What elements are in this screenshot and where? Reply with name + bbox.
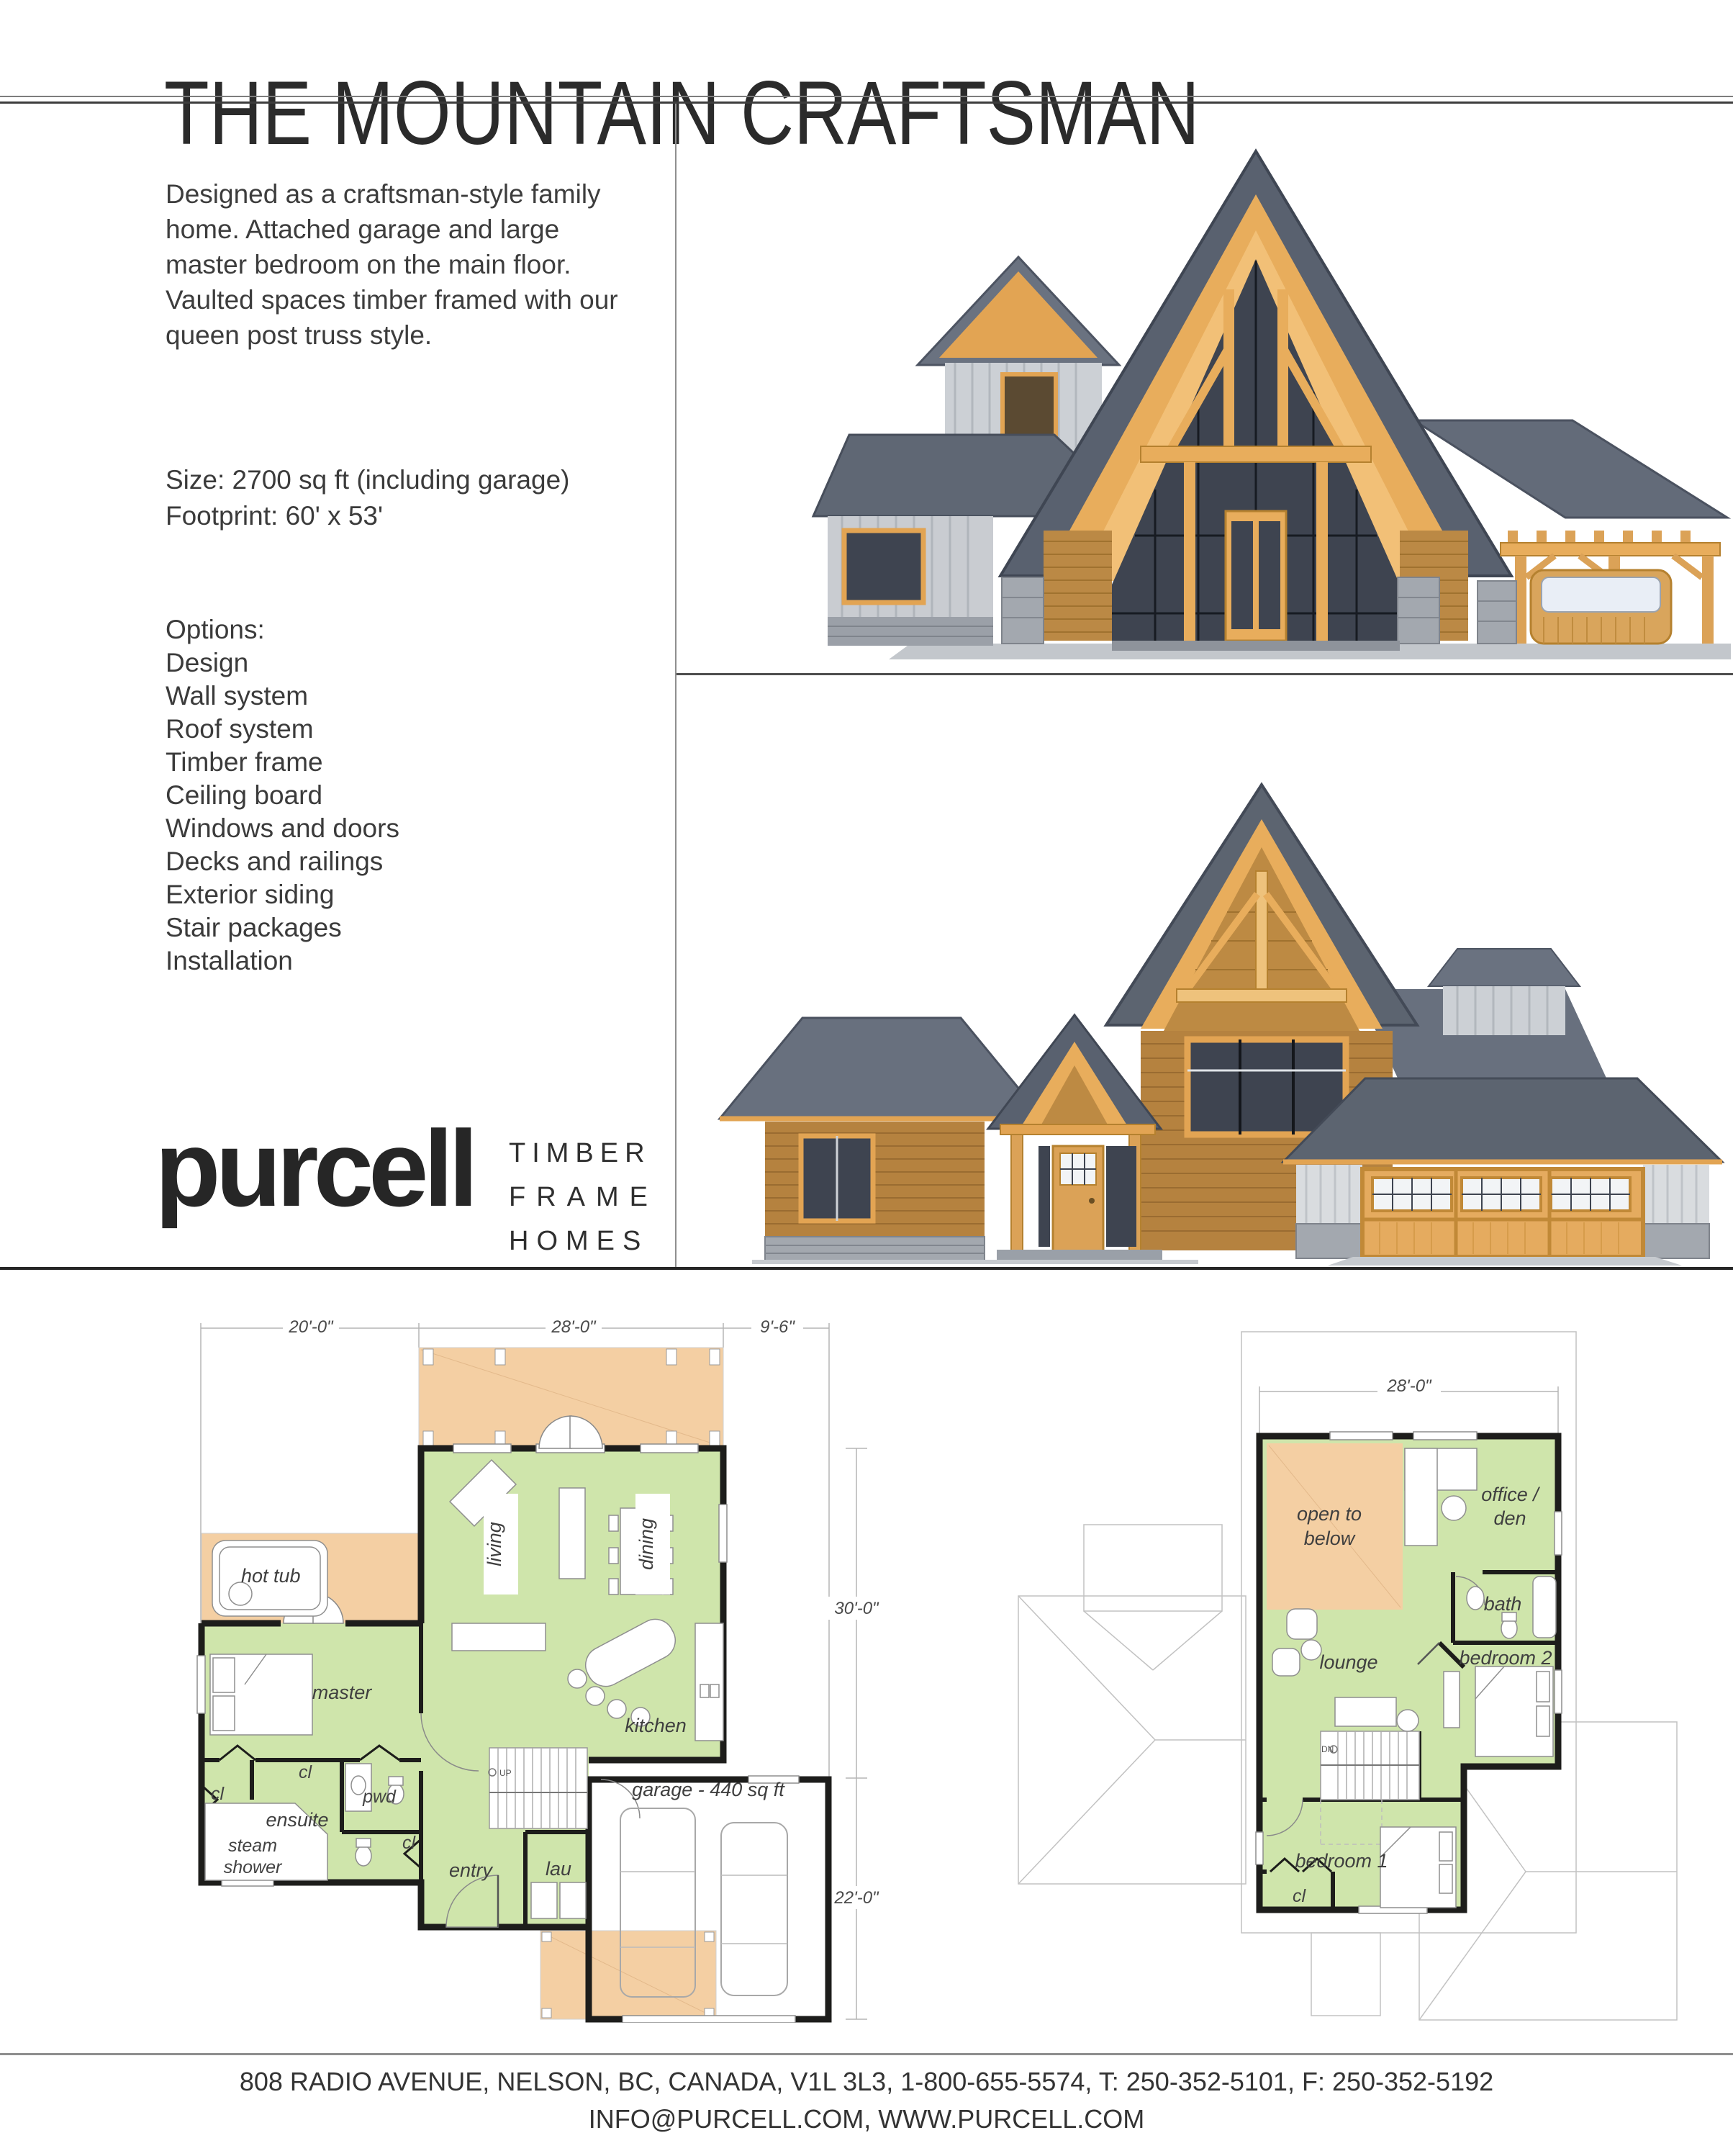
plan-main-stairs: UP (489, 1748, 587, 1828)
option-item: Installation (166, 944, 612, 978)
rear-render-shapes (813, 151, 1731, 659)
room-label: ensuite (266, 1809, 328, 1831)
footer-address-line: 808 RADIO AVENUE, NELSON, BC, CANADA, V1… (0, 2063, 1733, 2101)
option-item: Exterior siding (166, 878, 612, 911)
room-label: living (484, 1522, 505, 1566)
room-label: entry (449, 1859, 494, 1881)
footer: 808 RADIO AVENUE, NELSON, BC, CANADA, V1… (0, 2063, 1733, 2138)
room-label: below (1304, 1528, 1356, 1549)
options-block: Options: Design Wall system Roof system … (166, 613, 612, 978)
logo-tagline: TIMBER FRAME HOMES (509, 1132, 659, 1263)
room-label: dining (635, 1518, 657, 1570)
room-label: cl (299, 1762, 313, 1782)
stairs-dn-label: DN (1321, 1744, 1334, 1754)
footprint-line: Footprint: 60' x 53' (166, 498, 641, 534)
option-item: Design (166, 646, 612, 680)
option-item: Ceiling board (166, 779, 612, 812)
room-label: den (1493, 1507, 1526, 1529)
logo-tagline-line: TIMBER (509, 1132, 659, 1176)
option-item: Stair packages (166, 911, 612, 944)
logo-tagline-line: HOMES (509, 1219, 659, 1263)
section-divider (0, 1267, 1733, 1270)
room-label: office / (1481, 1484, 1540, 1505)
floorplan-upper: 28'-0" (979, 1296, 1698, 2023)
option-item: Wall system (166, 680, 612, 713)
room-label: steam (228, 1836, 277, 1856)
option-item: Roof system (166, 713, 612, 746)
dim-label: 9'-6" (760, 1317, 795, 1337)
room-label: bath (1484, 1593, 1522, 1615)
pergola (1501, 531, 1720, 644)
dim-label: 30'-0" (834, 1599, 879, 1618)
room-label: hot tub (241, 1565, 301, 1587)
header-rule-bottom (0, 102, 1733, 104)
dim-label: 28'-0" (1386, 1376, 1432, 1396)
room-label: lounge (1319, 1651, 1377, 1673)
front-render-shapes (720, 785, 1722, 1266)
footer-contact-line: INFO@PURCELL.COM, WWW.PURCELL.COM (0, 2101, 1733, 2138)
room-label: lau (546, 1858, 571, 1880)
floorplan-main: 20'-0" 28'-0" 9'-6" 30'-0" 22'-0" (180, 1296, 900, 2023)
room-label: cl (211, 1784, 225, 1804)
room-label: master (312, 1682, 373, 1703)
logo-wordmark: purcell (155, 1114, 474, 1222)
room-label: cl (402, 1833, 417, 1853)
logo-tagline-line: FRAME (509, 1176, 659, 1219)
garage-door-windows (1372, 1178, 1630, 1211)
purcell-logo: purcell TIMBER FRAME HOMES (155, 1123, 659, 1260)
render-rear-exterior (680, 109, 1731, 671)
column-divider (675, 104, 677, 1268)
description-paragraph: Designed as a craftsman-style family hom… (166, 176, 626, 353)
dim-label: 22'-0" (833, 1888, 879, 1908)
brochure-page: THE MOUNTAIN CRAFTSMAN Designed as a cra… (0, 0, 1733, 2156)
size-block: Size: 2700 sq ft (including garage) Foot… (166, 462, 641, 534)
dim-label: 28'-0" (551, 1317, 597, 1337)
option-item: Timber frame (166, 746, 612, 779)
stairs-up-label: UP (499, 1768, 512, 1778)
room-label: garage - 440 sq ft (632, 1779, 785, 1800)
options-heading: Options: (166, 613, 612, 646)
render-panel-divider (677, 673, 1733, 675)
room-label: pwd (362, 1787, 397, 1807)
room-label: kitchen (625, 1715, 687, 1736)
room-label: bedroom 2 (1459, 1647, 1552, 1669)
options-list: Design Wall system Roof system Timber fr… (166, 646, 612, 978)
size-line: Size: 2700 sq ft (including garage) (166, 462, 641, 498)
room-label: bedroom 1 (1295, 1850, 1388, 1872)
option-item: Decks and railings (166, 845, 612, 878)
room-label: shower (224, 1857, 283, 1877)
option-item: Windows and doors (166, 812, 612, 845)
header-rule-top (0, 96, 1733, 97)
dim-label: 20'-0" (288, 1317, 334, 1337)
room-label: open to (1297, 1503, 1362, 1525)
render-front-exterior (680, 678, 1731, 1266)
footer-rule (0, 2053, 1733, 2055)
room-label: cl (1293, 1886, 1307, 1906)
